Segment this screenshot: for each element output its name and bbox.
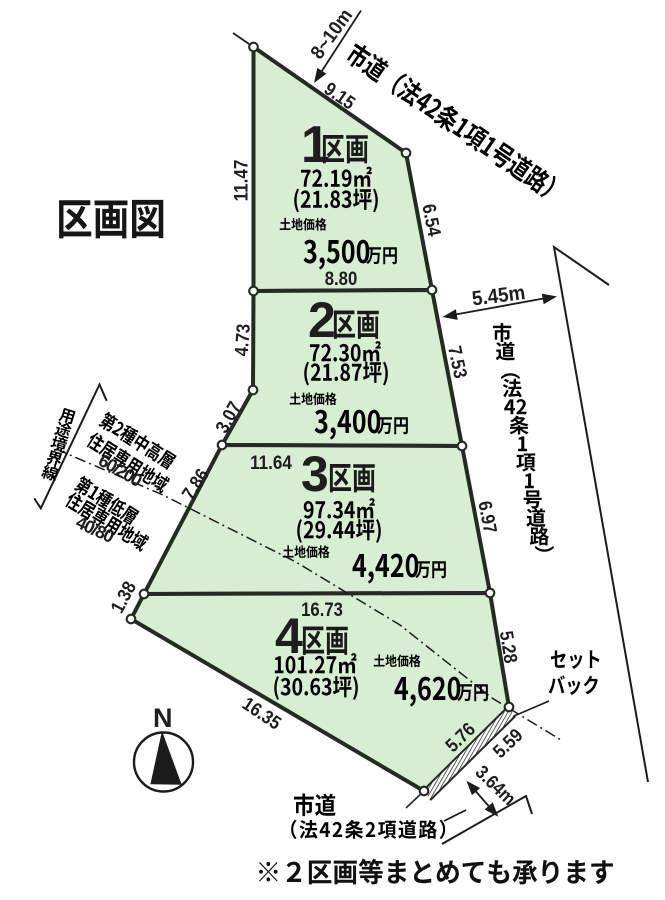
svg-text:2: 2: [308, 292, 336, 348]
svg-text:16.73: 16.73: [301, 600, 343, 621]
svg-text:3: 3: [301, 446, 329, 502]
svg-text:4: 4: [275, 608, 303, 664]
svg-text:8.80: 8.80: [325, 269, 358, 290]
svg-text:N: N: [153, 703, 173, 733]
svg-text:4.73: 4.73: [232, 323, 255, 357]
svg-text:11.64: 11.64: [250, 453, 292, 474]
svg-text:11.47: 11.47: [231, 160, 252, 202]
